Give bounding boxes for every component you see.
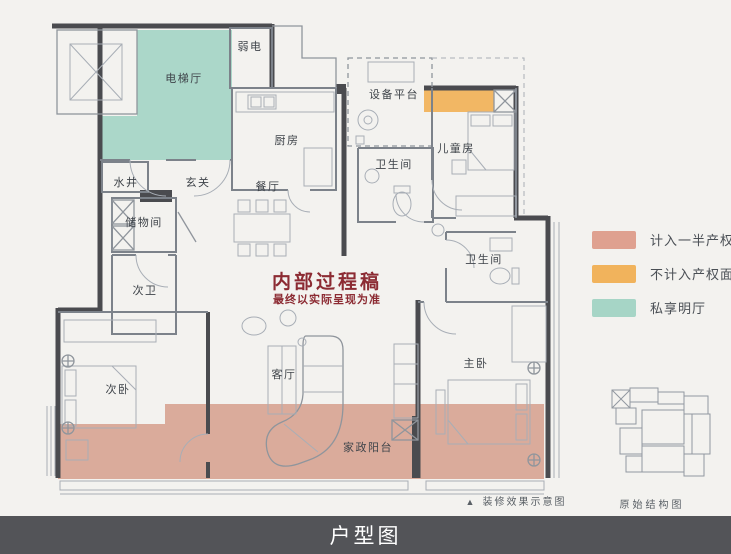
- legend-swatch-non-property: [592, 265, 636, 283]
- caption-original-structure: 原始结构图: [590, 496, 714, 511]
- zone-non-property-baywindow: [424, 90, 494, 112]
- legend-item-half-property: 计入一半产权面积: [592, 230, 731, 249]
- room-label-elevator-hall: 电梯厅: [165, 72, 203, 85]
- room-label-service-balcony: 家政阳台: [343, 440, 393, 454]
- watermark-line1: 内部过程稿: [272, 270, 382, 293]
- legend-item-non-property: 不计入产权面积: [592, 264, 731, 283]
- room-label-storage-room: 储物间: [125, 215, 163, 229]
- legend: 计入一半产权面积 不计入产权面积 私享明厅: [592, 230, 731, 317]
- footer-title: 户型图: [330, 520, 402, 550]
- page: 电梯厅 弱电 水井 玄关 厨房 餐厅 储物间 次卫 设备平台 卫生间 儿童房 卫…: [0, 0, 731, 554]
- room-label-entry: 玄关: [186, 175, 211, 189]
- room-label-kitchen: 厨房: [275, 134, 300, 147]
- legend-swatch-private-hall: [592, 299, 636, 317]
- triangle-marker-icon: ▲: [466, 497, 477, 507]
- room-label-water-well: 水井: [114, 175, 139, 189]
- zone-private-hall: [100, 30, 232, 160]
- room-label-dining-room: 餐厅: [256, 179, 281, 193]
- legend-label-half-property: 计入一半产权面积: [650, 230, 731, 249]
- legend-label-non-property: 不计入产权面积: [650, 264, 731, 283]
- room-label-second-bathroom: 次卫: [133, 283, 158, 297]
- caption-original-text: 原始结构图: [620, 500, 685, 511]
- room-label-weak-electric: 弱电: [238, 40, 263, 53]
- caption-renovation-note: ▲装修效果示意图: [424, 493, 608, 508]
- watermark-line2: 最终以实际呈现为准: [273, 292, 381, 306]
- room-label-kids-room: 儿童房: [437, 141, 475, 155]
- room-label-equipment-platform: 设备平台: [369, 87, 419, 101]
- caption-renovation-text: 装修效果示意图: [482, 497, 566, 508]
- room-label-bathroom-right: 卫生间: [465, 252, 503, 266]
- legend-label-private-hall: 私享明厅: [650, 298, 706, 317]
- room-label-second-bedroom: 次卧: [106, 382, 131, 396]
- room-label-master-bedroom: 主卧: [464, 357, 489, 370]
- legend-swatch-half-property: [592, 231, 636, 249]
- room-label-bathroom-top: 卫生间: [375, 157, 413, 171]
- zone-half-property: [58, 404, 544, 479]
- watermark: 内部过程稿 最终以实际呈现为准: [272, 270, 382, 306]
- room-label-living-room: 客厅: [272, 367, 297, 381]
- footer-bar: 户型图: [0, 516, 731, 554]
- legend-item-private-hall: 私享明厅: [592, 298, 731, 317]
- mini-structure-diagram: [612, 388, 710, 476]
